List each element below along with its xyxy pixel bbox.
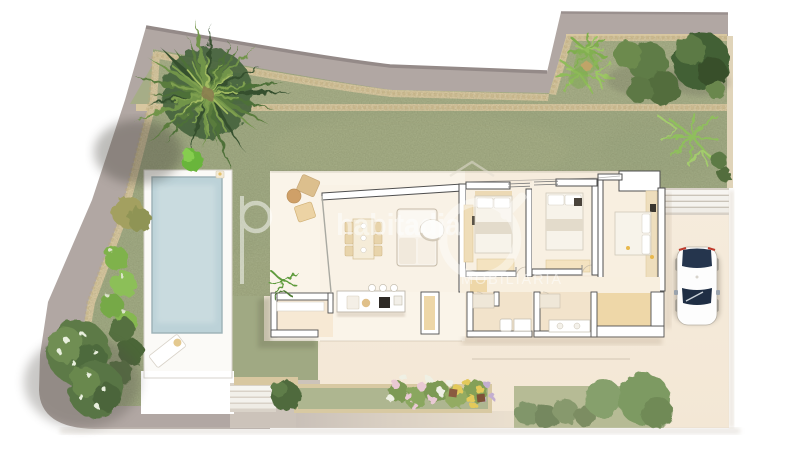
svg-text:habitadia: habitadia <box>336 207 462 242</box>
svg-text:MOBILIARIA: MOBILIARIA <box>461 271 563 288</box>
